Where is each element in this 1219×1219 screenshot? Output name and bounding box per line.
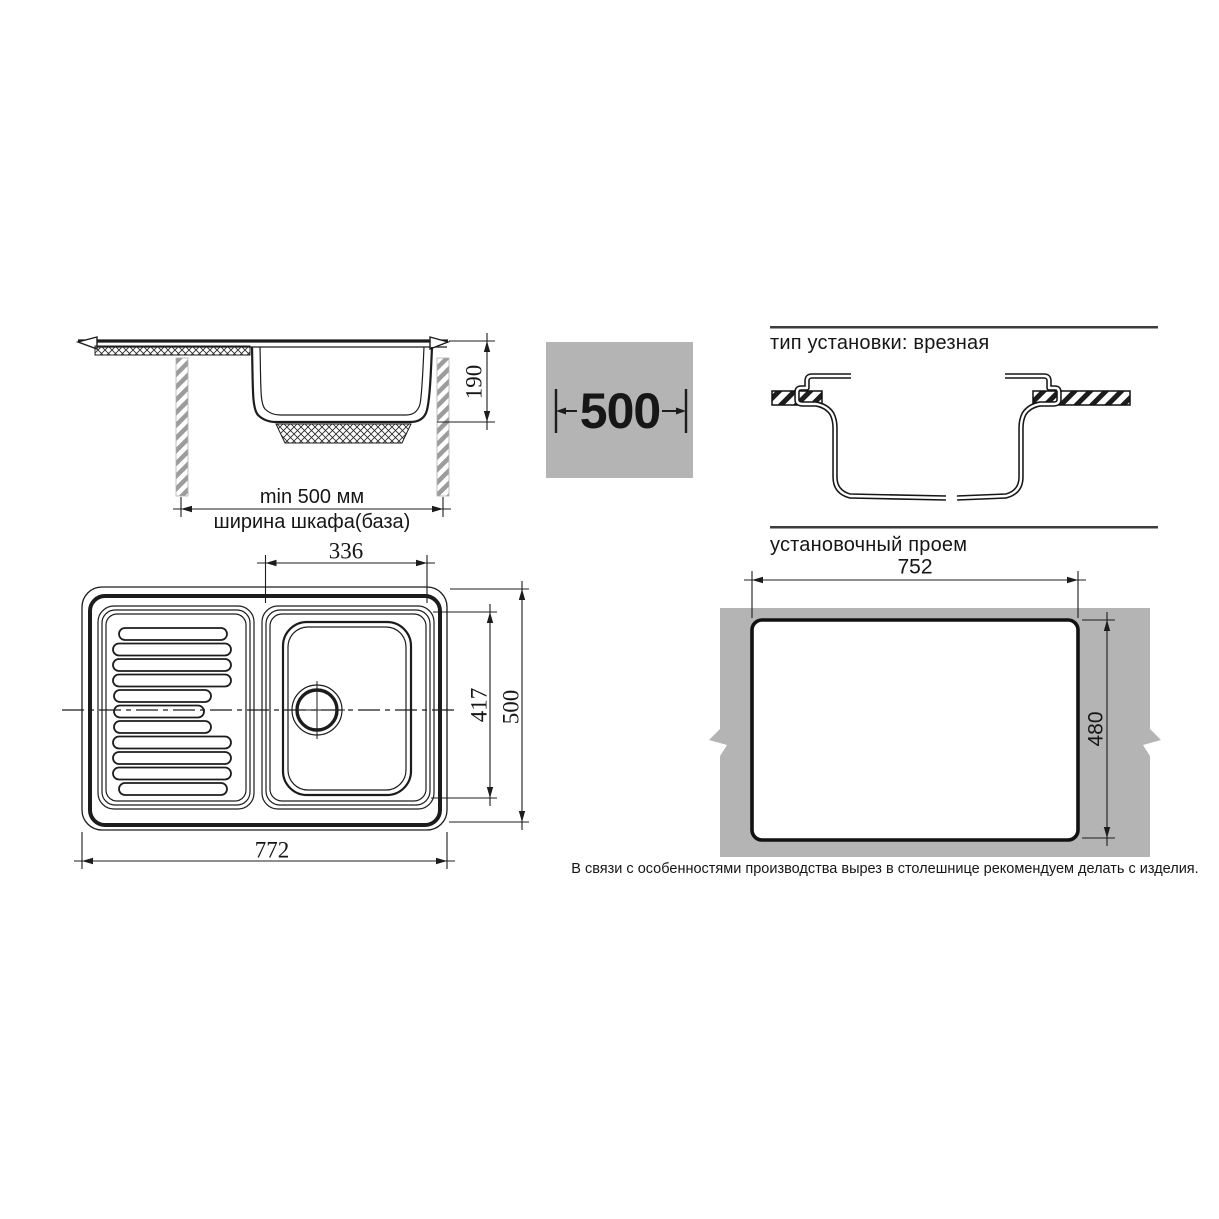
drainboard-rib: [119, 628, 227, 640]
drainboard-ribs: [113, 628, 231, 795]
install-type-title: тип установки: врезная: [770, 333, 989, 353]
drainboard-rib: [113, 752, 231, 764]
bowl-depth-dim-label: 417: [468, 688, 491, 723]
drainboard-rib: [113, 737, 231, 749]
overall-depth-dim-label: 500: [500, 690, 523, 725]
cutout: [752, 620, 1078, 840]
section-rule-bottom: [770, 526, 1158, 529]
drainboard-panel: [98, 606, 254, 809]
bowl-inner-wall: [260, 347, 424, 415]
opening-drawing: [709, 526, 1161, 857]
side-depth-dim-label: 190: [463, 365, 486, 400]
drainboard-rib: [119, 783, 227, 795]
section-rule-top: [770, 326, 1158, 329]
min-cabinet-width-label: min 500 мм: [260, 487, 364, 507]
drawing-canvas: [0, 0, 1219, 1219]
overall-width-dim-label: 772: [255, 839, 290, 862]
bowl-floor: [288, 627, 406, 790]
drainboard-rib: [114, 706, 204, 718]
drainboard-rib: [113, 768, 231, 780]
sink-installation-diagram: 190 min 500 мм ширина шкафа(база) 500 ти…: [0, 0, 1219, 1219]
drainboard-rib: [113, 675, 231, 687]
cabinet-wall-right: [437, 358, 449, 496]
bowl-panel: [262, 606, 434, 809]
drainboard-rib: [114, 690, 211, 702]
flange-left-edge: [78, 337, 97, 349]
badge-width-value: 500: [580, 386, 660, 436]
drainboard-rib: [113, 659, 231, 671]
top-view-drawing: [62, 555, 529, 869]
cabinet-width-caption: ширина шкафа(база): [214, 512, 411, 532]
bowl-bottom-hatch: [276, 424, 411, 443]
opening-title: установочный проем: [770, 535, 967, 555]
drainboard-rib: [114, 721, 211, 733]
drainboard-section-hatch: [95, 346, 250, 355]
cabinet-wall-left: [176, 358, 188, 496]
production-note: В связи с особенностями производства выр…: [571, 862, 1198, 877]
bowl-outer-wall: [252, 347, 432, 422]
opening-height-dim-label: 480: [1086, 711, 1107, 746]
bowl-inner-rim: [283, 622, 411, 795]
drainboard-rib: [113, 644, 231, 656]
opening-width-dim-label: 752: [897, 557, 932, 578]
bowl-width-dim-label: 336: [329, 540, 364, 563]
